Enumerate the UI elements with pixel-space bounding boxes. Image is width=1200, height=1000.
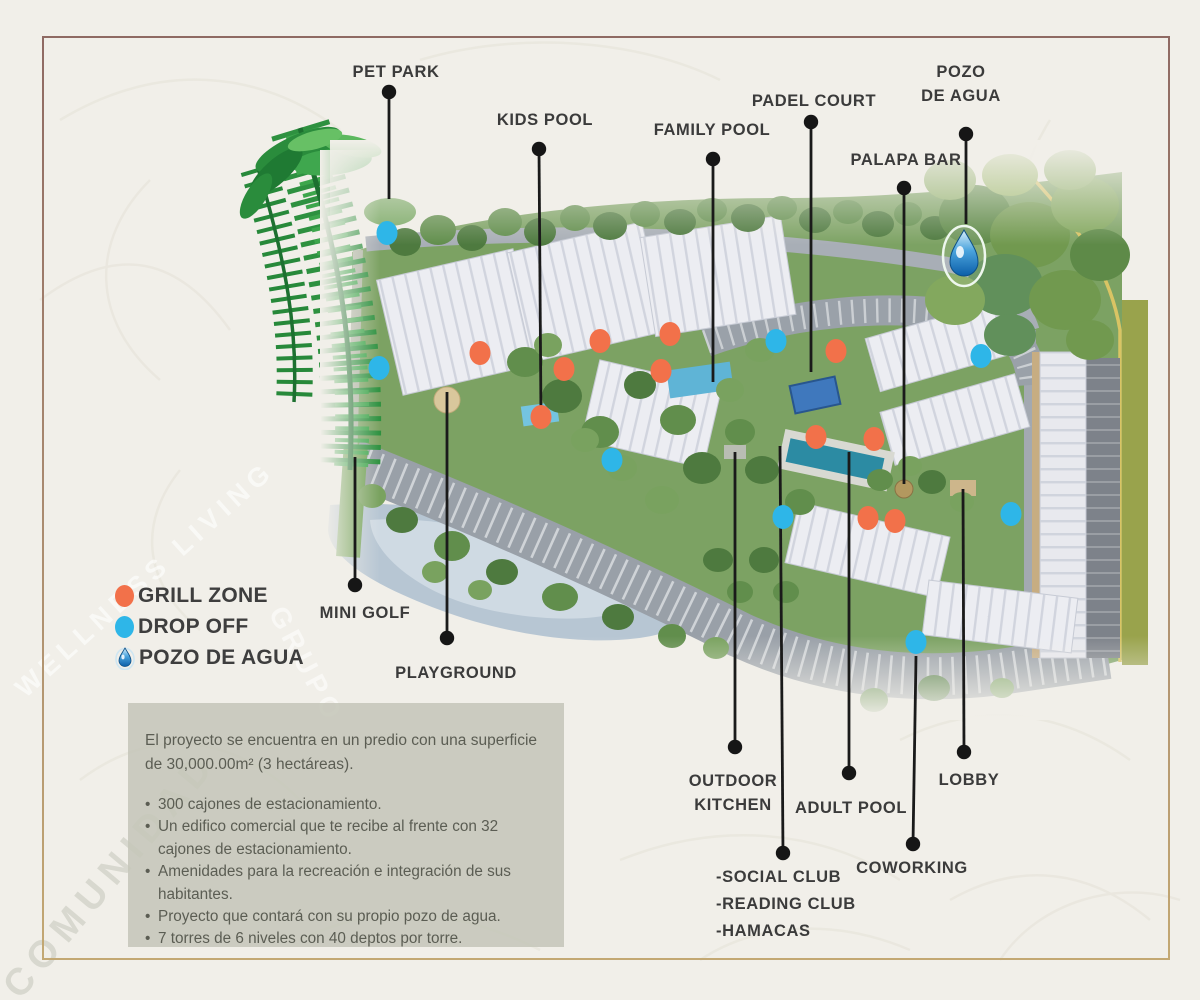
grill-zone-swatch [115, 585, 134, 607]
legend: GRILL ZONEDROP OFFPOZO DE AGUA [115, 584, 304, 677]
palapa-bar-label-line: PALAPA BAR [850, 148, 961, 172]
club-group-label-line: -SOCIAL CLUB [716, 864, 856, 891]
lobby-label-line: LOBBY [939, 768, 1000, 792]
mini-golf-label-line: MINI GOLF [320, 601, 411, 625]
project-bullet: Un edifico comercial que te recibe al fr… [145, 816, 548, 861]
palapa-bar-label: PALAPA BAR [850, 148, 961, 172]
legend-rows: GRILL ZONEDROP OFFPOZO DE AGUA [115, 584, 304, 670]
padel-court-label: PADEL COURT [752, 89, 876, 113]
legend-item-drop-off: DROP OFF [115, 615, 304, 639]
coworking-label: COWORKING [856, 856, 968, 880]
pozo-de-agua-label-line: POZO [921, 60, 1001, 84]
pet-park-label: PET PARK [352, 60, 439, 84]
adult-pool-label-line: ADULT POOL [795, 796, 907, 820]
outdoor-kitchen-label-line: OUTDOOR [689, 769, 778, 793]
legend-label: GRILL ZONE [138, 584, 268, 608]
project-bullet: Amenidades para la recreación e integrac… [145, 861, 548, 906]
lobby-label: LOBBY [939, 768, 1000, 792]
project-bullet: 300 cajones de estacionamiento. [145, 794, 548, 816]
family-pool-label-line: FAMILY POOL [654, 118, 771, 142]
outdoor-kitchen-label-line: KITCHEN [689, 793, 778, 817]
project-bullet: 7 torres de 6 niveles con 40 deptos por … [145, 928, 548, 950]
pozo-de-agua-label: POZODE AGUA [921, 60, 1001, 108]
droplet-icon [115, 646, 135, 670]
club-group-label: -SOCIAL CLUB-READING CLUB-HAMACAS [716, 864, 856, 945]
legend-label: DROP OFF [138, 615, 249, 639]
padel-court-label-line: PADEL COURT [752, 89, 876, 113]
club-group-label-line: -HAMACAS [716, 918, 856, 945]
project-intro: El proyecto se encuentra en un predio co… [145, 729, 548, 777]
kids-pool-label: KIDS POOL [497, 108, 593, 132]
coworking-label-line: COWORKING [856, 856, 968, 880]
project-info-box: El proyecto se encuentra en un predio co… [128, 703, 564, 947]
drop-off-swatch [115, 616, 134, 638]
club-group-label-line: -READING CLUB [716, 891, 856, 918]
family-pool-label: FAMILY POOL [654, 118, 771, 142]
playground-label-line: PLAYGROUND [395, 661, 517, 685]
legend-label: POZO DE AGUA [139, 646, 304, 670]
pet-park-label-line: PET PARK [352, 60, 439, 84]
pozo-de-agua-label-line: DE AGUA [921, 84, 1001, 108]
adult-pool-label: ADULT POOL [795, 796, 907, 820]
outdoor-kitchen-label: OUTDOORKITCHEN [689, 769, 778, 817]
kids-pool-label-line: KIDS POOL [497, 108, 593, 132]
legend-item-pozo-de-agua: POZO DE AGUA [115, 646, 304, 670]
site-plan-poster: WELLNESS LIVINGGRUPOCOMUNIDAD PET PARKKI… [0, 0, 1200, 1000]
playground-label: PLAYGROUND [395, 661, 517, 685]
pozo-de-agua-swatch [115, 646, 135, 670]
project-bullet: Proyecto que contará con su propio pozo … [145, 906, 548, 928]
legend-item-grill-zone: GRILL ZONE [115, 584, 304, 608]
mini-golf-label: MINI GOLF [320, 601, 411, 625]
project-bullets: 300 cajones de estacionamiento.Un edific… [145, 794, 548, 951]
